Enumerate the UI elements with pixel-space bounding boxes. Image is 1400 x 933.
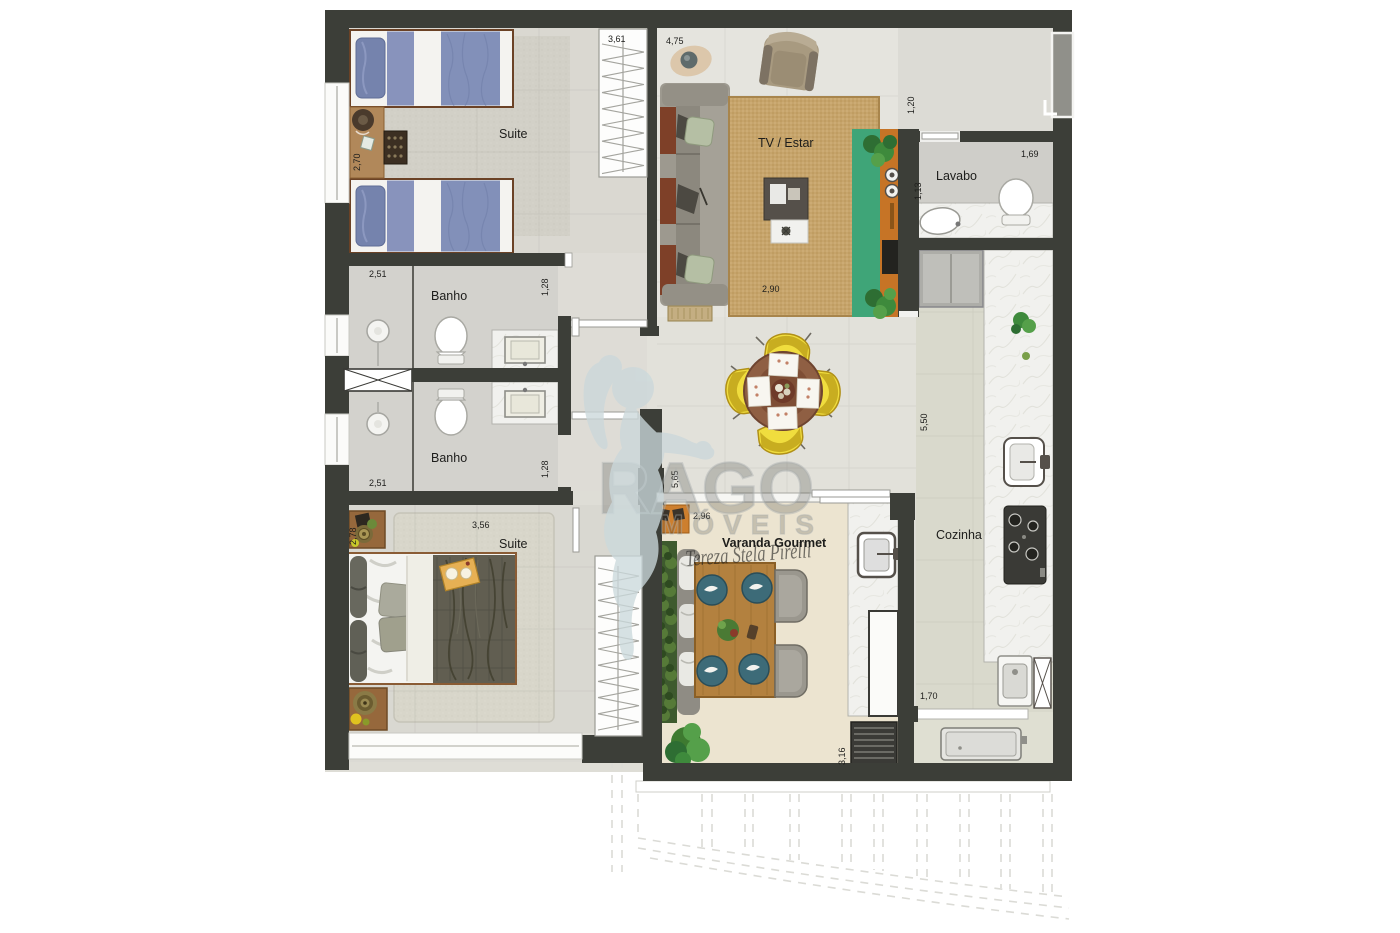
svg-text:5,50: 5,50 [919,413,929,431]
svg-text:Lavabo: Lavabo [936,169,977,183]
svg-text:MÓVEIS: MÓVEIS [660,509,823,540]
svg-text:3,16: 3,16 [837,747,847,765]
svg-text:3,56: 3,56 [472,520,490,530]
svg-text:1,13: 1,13 [913,182,923,200]
svg-text:4,75: 4,75 [666,36,684,46]
svg-text:2,70: 2,70 [352,153,362,171]
svg-text:2,51: 2,51 [369,269,387,279]
svg-text:2,51: 2,51 [369,478,387,488]
svg-text:3,61: 3,61 [608,34,626,44]
svg-text:TV / Estar: TV / Estar [758,136,814,150]
svg-text:Suite: Suite [499,537,528,551]
svg-text:Cozinha: Cozinha [936,528,982,542]
svg-text:Banho: Banho [431,289,467,303]
svg-text:2,90: 2,90 [762,284,780,294]
svg-text:1,20: 1,20 [906,96,916,114]
svg-text:1,28: 1,28 [540,278,550,296]
svg-text:Suite: Suite [499,127,528,141]
svg-text:1,69: 1,69 [1021,149,1039,159]
svg-text:1,28: 1,28 [540,460,550,478]
svg-text:Banho: Banho [431,451,467,465]
svg-text:2,78: 2,78 [348,527,358,545]
svg-text:1,70: 1,70 [920,691,938,701]
